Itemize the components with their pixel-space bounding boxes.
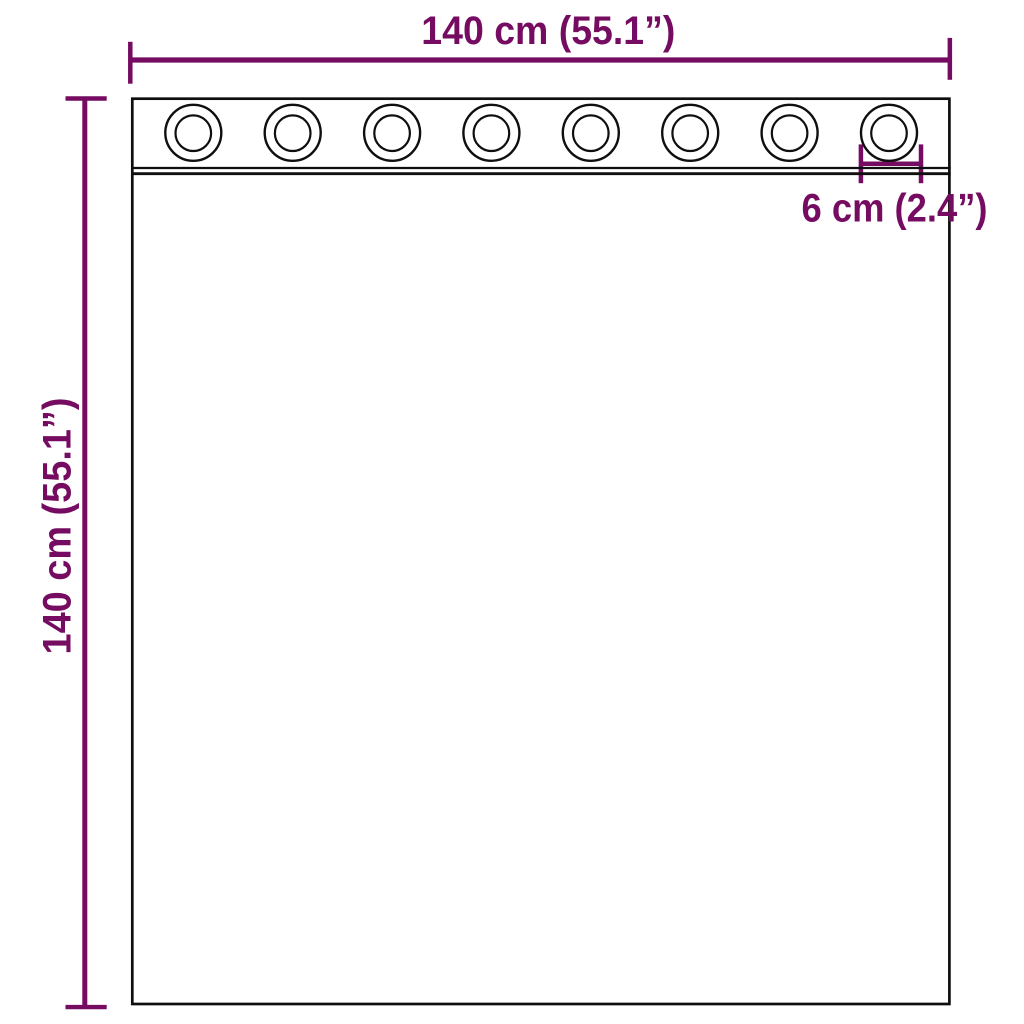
svg-text:140 cm (55.1”): 140 cm (55.1”) — [35, 398, 79, 655]
svg-text:6 cm (2.4”): 6 cm (2.4”) — [802, 187, 988, 231]
svg-text:140 cm (55.1”): 140 cm (55.1”) — [421, 9, 675, 53]
